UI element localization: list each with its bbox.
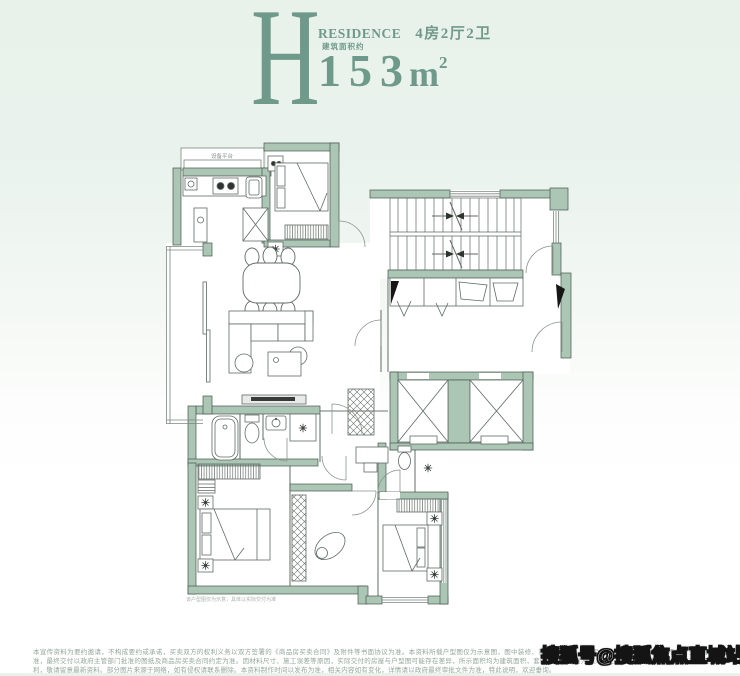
- shower-drain-icon: [299, 424, 307, 432]
- coffee-table-icon: [268, 352, 301, 376]
- closet-column: [292, 495, 306, 581]
- wardrobe-icon: [285, 225, 328, 239]
- bathtub-icon: [212, 416, 238, 460]
- residence-title-row: RESIDENCE4房2厅2卫: [318, 22, 492, 43]
- elevator-icon: [470, 380, 523, 444]
- bed-icon: [275, 163, 328, 211]
- fridge-icon: [243, 208, 268, 241]
- floor-plan: 设备平台: [158, 128, 588, 610]
- elevator-icon: [398, 380, 448, 444]
- residence-label: RESIDENCE: [318, 26, 401, 41]
- side-table-icon: [235, 354, 253, 372]
- dining-table-icon: [243, 247, 300, 320]
- svg-text:H: H: [251, 6, 320, 106]
- toilet-icon: [398, 446, 411, 470]
- shower-icon: [290, 414, 316, 441]
- plan-caption: 该户型图仅为示意，具体以实际交付为准: [186, 596, 276, 603]
- unit-letter-h-glyph: H: [250, 6, 322, 106]
- watermark: 搜狐号@搜狐焦点直城站: [541, 642, 740, 668]
- dresser-icon: [356, 447, 388, 463]
- floorplan-brochure-page: { "header": { "unit_letter": "H", "resid…: [0, 0, 740, 673]
- toilet-icon: [245, 415, 259, 443]
- tv-console-icon: [242, 395, 306, 404]
- wardrobe-icon: [397, 499, 440, 512]
- bed-icon: [383, 525, 428, 571]
- area-exponent: 2: [439, 53, 448, 72]
- area-value: 153: [318, 45, 411, 96]
- area-unit: m: [409, 54, 439, 94]
- bed-icon: [200, 509, 270, 560]
- platform-label: 设备平台: [211, 152, 234, 160]
- unit-letter-badge: H: [250, 6, 322, 106]
- layout-label: 4房2厅2卫: [415, 26, 492, 42]
- shower-drain-icon: [424, 464, 432, 472]
- basin-icon: [266, 416, 286, 430]
- stove-icon: [213, 178, 238, 194]
- wardrobe-icon: [198, 464, 260, 479]
- area-value-row: 153m2: [318, 44, 448, 97]
- sink-icon: [246, 177, 262, 198]
